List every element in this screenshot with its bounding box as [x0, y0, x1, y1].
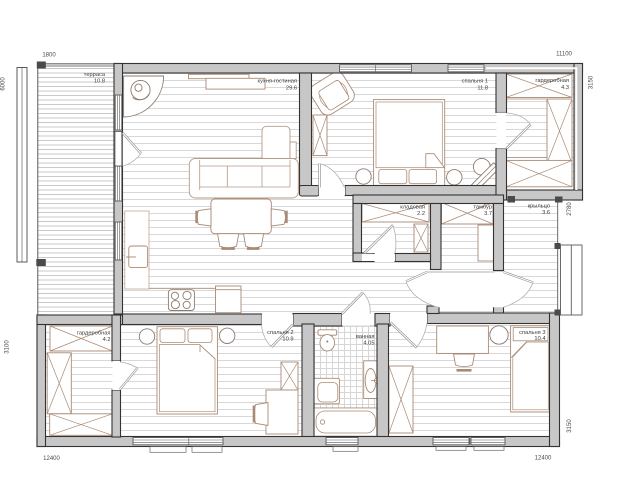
svg-text:2.2: 2.2 [417, 211, 425, 217]
svg-text:3100: 3100 [5, 340, 11, 354]
svg-text:4.2: 4.2 [103, 337, 111, 343]
svg-text:3.7: 3.7 [484, 211, 492, 217]
svg-text:29.6: 29.6 [286, 85, 297, 91]
svg-text:крыльцо: крыльцо [528, 204, 550, 210]
svg-text:4.3: 4.3 [561, 85, 569, 91]
svg-text:гардеробная: гардеробная [535, 78, 569, 84]
svg-text:6000: 6000 [1, 77, 7, 91]
svg-text:1800: 1800 [42, 53, 56, 59]
svg-text:11100: 11100 [556, 52, 572, 58]
svg-text:3150: 3150 [567, 419, 573, 433]
svg-text:спальня 1: спальня 1 [462, 79, 488, 85]
svg-text:10.9: 10.9 [282, 337, 293, 343]
svg-text:11.8: 11.8 [477, 85, 488, 91]
svg-text:кладовая: кладовая [400, 205, 425, 211]
svg-text:спальня 2: спальня 2 [267, 330, 293, 336]
svg-text:4.05: 4.05 [363, 341, 374, 347]
svg-text:3.6: 3.6 [542, 210, 550, 216]
svg-text:10.4: 10.4 [534, 336, 545, 342]
svg-text:ванная: ванная [356, 334, 375, 340]
svg-text:10.8: 10.8 [94, 79, 105, 85]
svg-text:тамбур: тамбур [473, 205, 492, 211]
svg-text:12400: 12400 [535, 456, 552, 462]
svg-text:терраса: терраса [84, 72, 106, 78]
svg-text:12400: 12400 [43, 456, 60, 462]
svg-text:спальня 3: спальня 3 [519, 330, 545, 336]
svg-text:3150: 3150 [589, 75, 595, 89]
svg-text:гардеробная: гардеробная [77, 331, 111, 337]
svg-text:2780: 2780 [567, 202, 573, 216]
svg-text:кухня-гостиная: кухня-гостиная [258, 79, 297, 85]
